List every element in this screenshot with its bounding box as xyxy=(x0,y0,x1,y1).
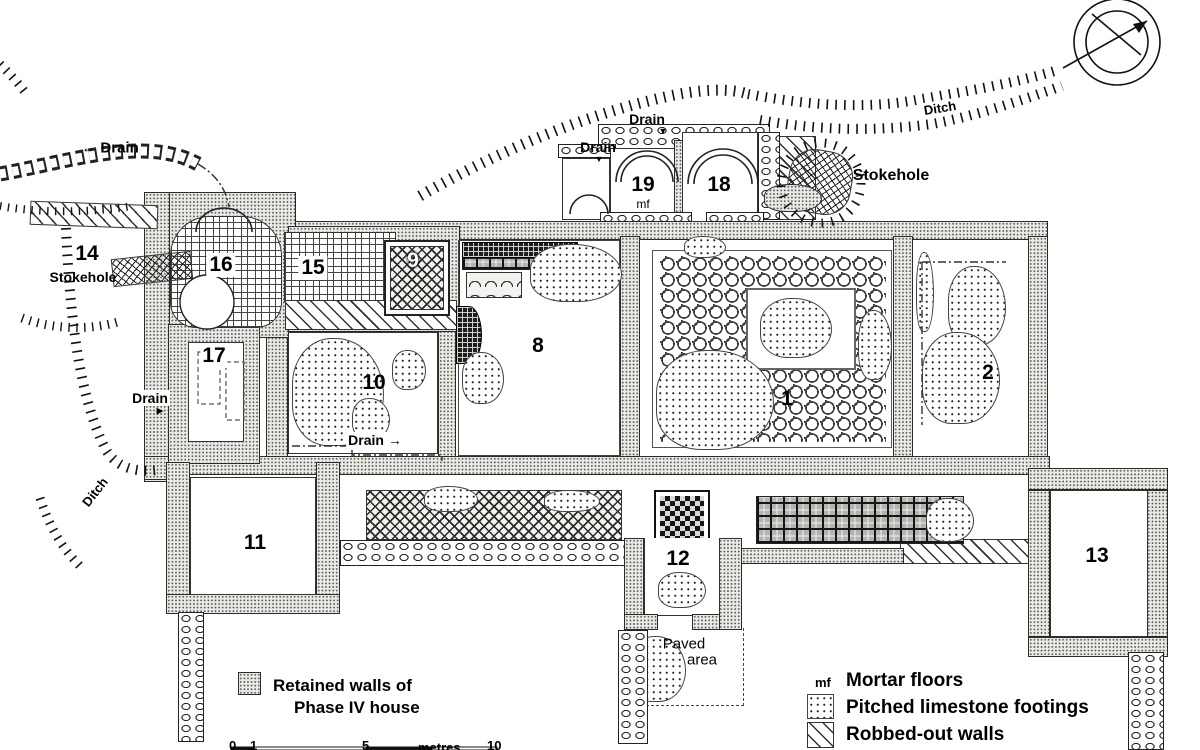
ditch-arc-room14-south xyxy=(22,318,118,328)
wall-stub-below-room11 xyxy=(178,612,204,742)
room2-footing-spread-a xyxy=(916,252,934,332)
room11-wall-south xyxy=(166,594,340,614)
wall-stub-below-room13 xyxy=(1128,652,1164,750)
room-label-15: 15 xyxy=(298,256,327,280)
drain-label-northwest: ← Drain xyxy=(81,140,139,157)
legend-robbed-walls-swatch xyxy=(807,722,834,748)
room1-footing-spread-a xyxy=(656,350,774,450)
ditch-label-west: Ditch xyxy=(79,475,111,510)
ditch-west-lower xyxy=(40,498,80,566)
wall-stub-below-paved-area xyxy=(618,630,648,744)
room13-wall-east xyxy=(1146,490,1168,637)
ditch-topleft-corner xyxy=(0,64,28,96)
arrow-right-icon: ▶ xyxy=(157,406,164,417)
corridor-meander-gap xyxy=(926,498,974,542)
room-label-17: 17 xyxy=(200,344,227,368)
room-label-16: 16 xyxy=(206,253,235,277)
room8-footing-spread-a xyxy=(530,244,622,302)
room13-wall-north xyxy=(1028,468,1168,490)
paved-area-label-line2: area xyxy=(687,652,717,669)
wall-room1-west xyxy=(620,236,640,464)
bathhouse-west-cell xyxy=(562,158,610,220)
stokehole-label-west: Stokehole xyxy=(50,269,117,285)
scale-tick-10: 10 xyxy=(487,738,501,750)
drain-label-room19-north: Drain xyxy=(629,111,665,127)
room12-wall-east xyxy=(718,538,742,630)
paved-area-label-line1: Paved xyxy=(663,636,706,653)
wall-south-main xyxy=(165,456,1050,475)
scale-tick-0: 0 xyxy=(229,738,236,750)
room19-mortar-floor-note: mf xyxy=(636,197,649,211)
legend-retained-walls-line1: Retained walls of xyxy=(273,676,412,696)
room13-wall-west xyxy=(1028,490,1050,637)
room10-footing-spread-b xyxy=(392,350,426,390)
room-label-9: 9 xyxy=(407,249,419,273)
room1-footing-spread-c xyxy=(858,310,892,380)
legend-mortar-floors-label: Mortar floors xyxy=(846,670,963,692)
drain-label-room17: Drain xyxy=(130,390,170,406)
corridor-mosaic-gap-b xyxy=(544,490,600,512)
drain-label-room10: Drain → xyxy=(346,432,404,448)
wall-east-main xyxy=(1028,236,1048,468)
stokehole-label-east: Stokehole xyxy=(853,167,929,185)
room-label-12: 12 xyxy=(666,547,689,571)
compass-icon xyxy=(1063,0,1160,85)
arrow-down-icon: ▼ xyxy=(595,154,604,164)
bathhouse-stylobate-row xyxy=(600,212,692,222)
room-label-8: 8 xyxy=(532,334,544,358)
room8-footing-spread-b xyxy=(462,352,504,404)
arrow-down-icon: ▼ xyxy=(659,126,668,136)
annex-west-wall xyxy=(144,192,170,482)
room-label-1: 1 xyxy=(781,387,793,411)
scale-unit-label: metres xyxy=(418,740,461,750)
legend-retained-walls-line2: Phase IV house xyxy=(294,698,420,718)
robbed-wall-band-northwest xyxy=(30,201,159,229)
corridor-rubble-wall xyxy=(340,540,664,566)
corridor-mosaic-gap-a xyxy=(424,486,478,512)
legend-pitched-footings-swatch xyxy=(807,694,834,719)
room-label-11: 11 xyxy=(244,531,266,555)
ditch-top-east-upper xyxy=(748,70,1058,105)
drain-label-room19-west: Drain xyxy=(580,139,616,155)
room-label-2: 2 xyxy=(982,361,994,385)
room11-wall-west xyxy=(166,462,190,614)
room-label-18: 18 xyxy=(707,173,730,197)
room-label-14: 14 xyxy=(75,242,98,266)
wall-room1-east xyxy=(893,236,913,464)
legend-mf-abbrev: mf xyxy=(815,675,831,690)
room1-central-debris xyxy=(760,298,832,358)
ditch-label-north: Ditch xyxy=(921,98,959,119)
room-label-10: 10 xyxy=(362,371,385,395)
scale-tick-5: 5 xyxy=(362,738,369,750)
room1-footing-spread-b xyxy=(684,236,726,258)
room-label-19: 19 xyxy=(631,173,654,197)
room-label-13: 13 xyxy=(1085,544,1108,568)
site-plan: 1 2 8 9 10 11 12 13 14 15 16 17 18 19 mf… xyxy=(0,0,1200,750)
room11-wall-east xyxy=(316,462,340,614)
scale-tick-1: 1 xyxy=(250,738,257,750)
legend-pitched-footings-label: Pitched limestone footings xyxy=(846,697,1089,719)
room12-footing-spread xyxy=(658,572,706,608)
bathhouse-footing-east xyxy=(764,184,822,212)
legend-retained-walls-swatch xyxy=(238,672,261,695)
bathhouse-stylobate-row-east xyxy=(706,212,764,222)
legend-robbed-walls-label: Robbed-out walls xyxy=(846,724,1004,746)
room8-scallop-mosaic xyxy=(466,272,522,298)
ditch-top-east-lower xyxy=(760,86,1062,129)
room12-threshold-mosaic xyxy=(660,496,704,542)
